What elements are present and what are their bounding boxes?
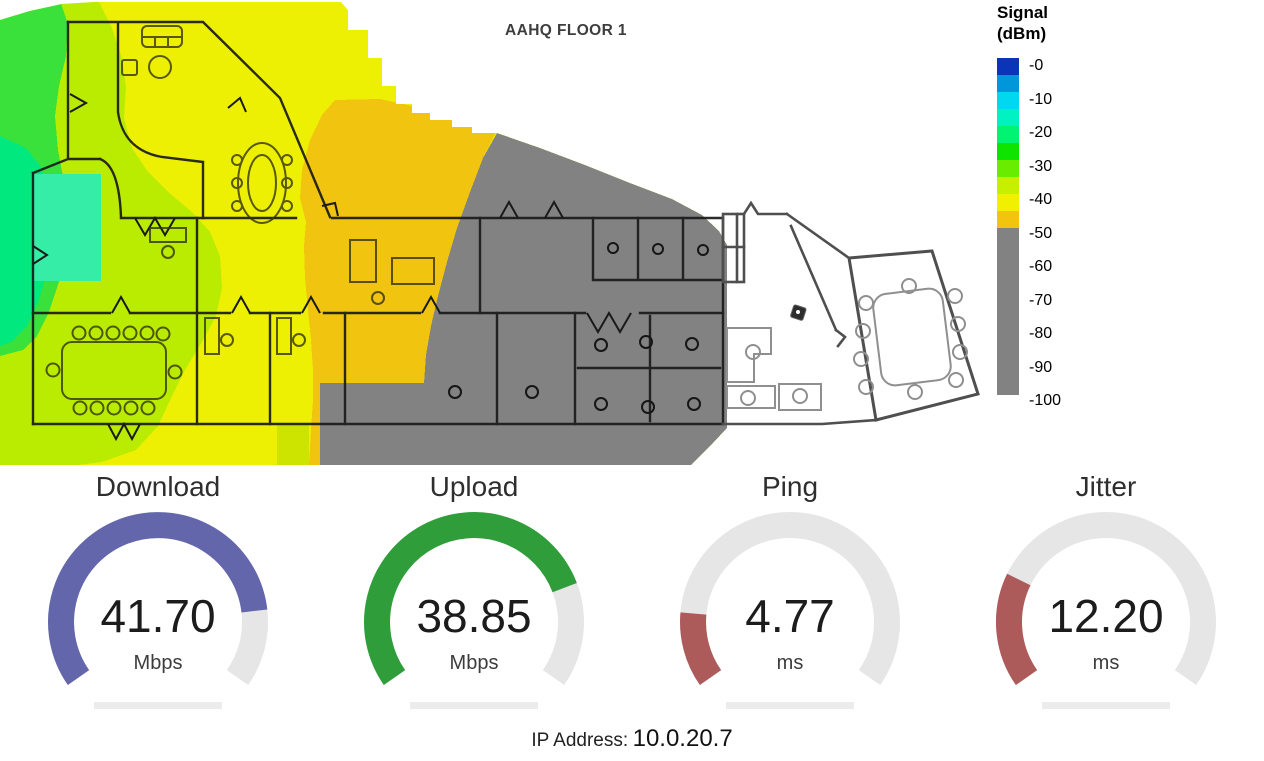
legend-tick: -20 xyxy=(1029,124,1052,142)
legend-color-band xyxy=(997,194,1019,211)
gauge-unit: ms xyxy=(948,652,1264,675)
heat-dark-yellow-band xyxy=(277,425,309,465)
legend-tick: -70 xyxy=(1029,292,1052,310)
gauge-title: Download xyxy=(0,470,316,508)
access-point-marker xyxy=(790,304,806,320)
legend-color-band xyxy=(997,58,1019,75)
signal-legend: Signal (dBm) -0-10-20-30-40-50-60-70-80-… xyxy=(993,0,1264,420)
legend-color-band xyxy=(997,75,1019,92)
ip-value: 10.0.20.7 xyxy=(633,725,733,752)
gauge-value: 38.85 xyxy=(316,592,632,640)
floorplan-svg xyxy=(0,0,990,465)
gauges-row: Download41.70MbpsUpload38.85MbpsPing4.77… xyxy=(0,470,1264,709)
legend-tick: -50 xyxy=(1029,225,1052,243)
gauge-title: Upload xyxy=(316,470,632,508)
gauge-history-bar xyxy=(726,702,854,709)
gauge-history-bar xyxy=(1042,702,1170,709)
legend-tick: -100 xyxy=(1029,392,1061,410)
legend-tick: -90 xyxy=(1029,359,1052,377)
legend-color-band xyxy=(997,211,1019,228)
heat-mint-room xyxy=(33,174,101,281)
ip-label: IP Address: xyxy=(531,730,628,751)
legend-color-band xyxy=(997,143,1019,160)
legend-color-band xyxy=(997,109,1019,126)
gauge-jitter: Jitter12.20ms xyxy=(948,470,1264,709)
gauge-unit: Mbps xyxy=(0,652,316,675)
gauge-download: Download41.70Mbps xyxy=(0,470,316,709)
legend-gray-band xyxy=(997,228,1019,395)
gauge-title: Ping xyxy=(632,470,948,508)
legend-tick: -40 xyxy=(1029,191,1052,209)
gauge-value: 41.70 xyxy=(0,592,316,640)
gauge-unit: ms xyxy=(632,652,948,675)
legend-color-band xyxy=(997,92,1019,109)
gauge-history-bar xyxy=(410,702,538,709)
white-zone-walls xyxy=(723,203,978,424)
legend-tick: -10 xyxy=(1029,91,1052,109)
gauge-value: 4.77 xyxy=(632,592,948,640)
legend-tick: -0 xyxy=(1029,57,1043,75)
legend-tick: -30 xyxy=(1029,158,1052,176)
legend-tick: -80 xyxy=(1029,325,1052,343)
legend-colorbar xyxy=(997,58,1019,395)
gauge-title: Jitter xyxy=(948,470,1264,508)
gauge-history-bar xyxy=(94,702,222,709)
legend-color-band xyxy=(997,126,1019,143)
legend-title: Signal (dBm) xyxy=(997,2,1048,44)
legend-tick: -60 xyxy=(1029,258,1052,276)
heatmap-section: AAHQ FLOOR 1 Signal (dBm) -0-10-20-30-40… xyxy=(0,0,1264,465)
floor-title: AAHQ FLOOR 1 xyxy=(0,22,1132,40)
gauge-unit: Mbps xyxy=(316,652,632,675)
white-zone-furniture xyxy=(727,279,967,410)
ip-footer: IP Address: 10.0.20.7 xyxy=(0,725,1264,753)
legend-color-band xyxy=(997,177,1019,194)
gauge-value: 12.20 xyxy=(948,592,1264,640)
legend-color-band xyxy=(997,160,1019,177)
gauge-upload: Upload38.85Mbps xyxy=(316,470,632,709)
gauge-ping: Ping4.77ms xyxy=(632,470,948,709)
